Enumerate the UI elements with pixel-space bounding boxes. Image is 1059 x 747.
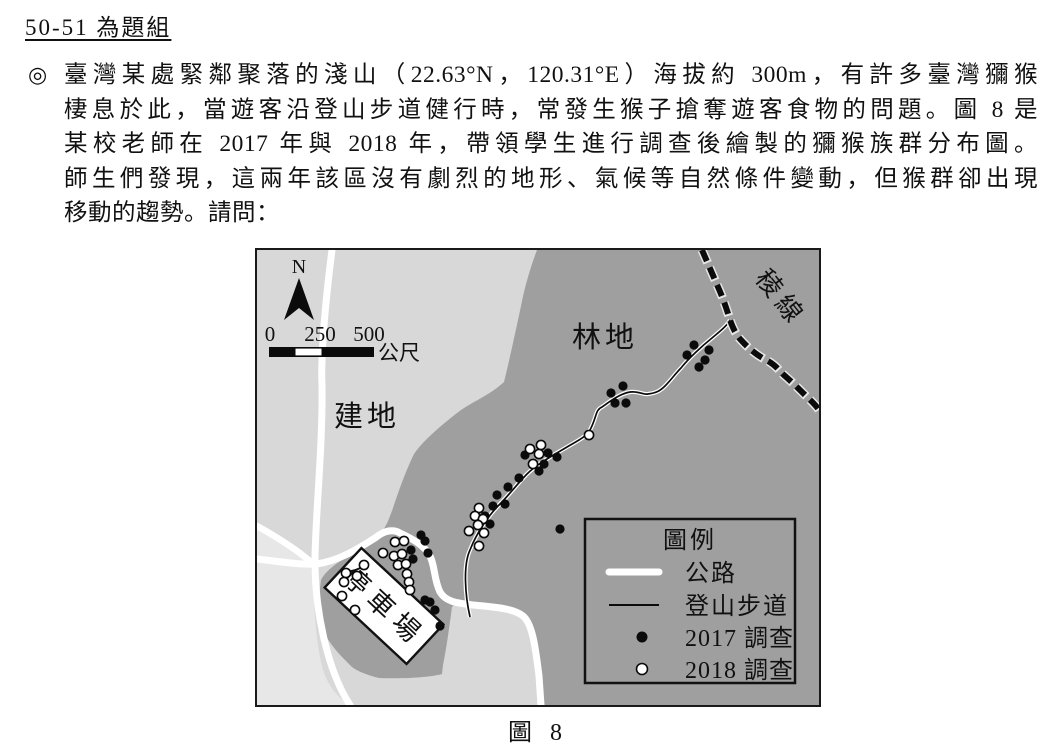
paragraph-line: 師生們發現，這兩年該區沒有劇烈的地形、氣候等自然條件變動，但猴群卻出現 bbox=[64, 164, 1038, 199]
survey-dot-2017 bbox=[606, 388, 615, 397]
survey-dot-2017 bbox=[406, 545, 415, 554]
survey-dot-2017 bbox=[552, 452, 561, 461]
question-group-heading: 50-51 為題組 bbox=[25, 8, 171, 42]
survey-dot-2017 bbox=[420, 536, 429, 545]
survey-dot-2018 bbox=[464, 526, 473, 535]
exam-page: 50-51 為題組 ◎ 臺灣某處緊鄰聚落的淺山（22.63°N，120.31°E… bbox=[0, 0, 1059, 747]
scale-tick-0: 0 bbox=[265, 322, 276, 346]
paragraph-line: 臺灣某處緊鄰聚落的淺山（22.63°N，120.31°E）海拔約 300m，有許… bbox=[64, 60, 1038, 95]
survey-dot-2017 bbox=[618, 381, 627, 390]
survey-dot-2018 bbox=[479, 528, 488, 537]
legend-2018-label: 2018 調查 bbox=[685, 657, 794, 684]
survey-dot-2018 bbox=[397, 549, 406, 558]
survey-dot-2018 bbox=[534, 449, 543, 458]
survey-dot-2017 bbox=[704, 345, 713, 354]
survey-dot-2018 bbox=[399, 536, 408, 545]
survey-dot-2018 bbox=[474, 541, 483, 550]
survey-dot-2018 bbox=[528, 459, 537, 468]
survey-dot-2017 bbox=[492, 490, 501, 499]
survey-dot-2017 bbox=[694, 362, 703, 371]
legend-2017-label: 2017 調查 bbox=[685, 625, 794, 652]
survey-dot-2017 bbox=[700, 355, 709, 364]
survey-dot-2017 bbox=[621, 398, 630, 407]
scale-bar-segment bbox=[296, 349, 322, 356]
figure-caption: 圖 8 bbox=[255, 712, 821, 747]
paragraph-line: 移動的趨勢。請問： bbox=[64, 198, 1038, 233]
survey-dot-2017 bbox=[555, 524, 564, 533]
survey-dot-2018 bbox=[359, 560, 368, 569]
paragraph-line: 棲息於此，當遊客沿登山步道健行時，常發生猴子搶奪遊客食物的問題。圖 8 是 bbox=[64, 95, 1038, 130]
survey-dot-2017 bbox=[488, 501, 497, 510]
forest-area-label: 林地 bbox=[572, 321, 638, 354]
survey-dot-2017 bbox=[543, 448, 552, 457]
survey-dot-2018 bbox=[390, 537, 399, 546]
survey-dot-2018 bbox=[341, 568, 350, 577]
survey-dot-2017 bbox=[425, 597, 434, 606]
survey-dot-2018 bbox=[401, 559, 410, 568]
legend-2018-dot bbox=[637, 664, 648, 675]
legend-trail-label: 登山步道 bbox=[685, 593, 789, 620]
survey-dot-2017 bbox=[689, 340, 698, 349]
survey-dot-2017 bbox=[430, 605, 439, 614]
survey-dot-2018 bbox=[525, 444, 534, 453]
survey-dot-2018 bbox=[378, 548, 387, 557]
survey-dot-2018 bbox=[352, 571, 361, 580]
survey-dot-2017 bbox=[435, 621, 444, 630]
scale-unit-label: 公尺 bbox=[378, 341, 420, 365]
scale-tick-250: 250 bbox=[304, 322, 336, 346]
survey-dot-2018 bbox=[584, 430, 593, 439]
survey-dot-2018 bbox=[405, 585, 414, 594]
question-paragraph: 臺灣某處緊鄰聚落的淺山（22.63°N，120.31°E）海拔約 300m，有許… bbox=[64, 60, 1038, 233]
survey-dot-2017 bbox=[514, 473, 523, 482]
survey-dot-2018 bbox=[536, 440, 545, 449]
survey-dot-2018 bbox=[350, 605, 359, 614]
survey-dot-2017 bbox=[682, 350, 691, 359]
paragraph-line: 某校老師在 2017 年與 2018 年，帶領學生進行調查後繪製的獼猴族群分布圖… bbox=[64, 129, 1038, 164]
north-label: N bbox=[292, 256, 306, 278]
survey-dot-2018 bbox=[339, 577, 348, 586]
survey-dot-2018 bbox=[337, 591, 346, 600]
survey-dot-2018 bbox=[473, 520, 482, 529]
legend-road-label: 公路 bbox=[685, 560, 737, 587]
survey-dot-2017 bbox=[503, 482, 512, 491]
paragraph-marker: ◎ bbox=[28, 62, 47, 88]
legend-2017-dot bbox=[637, 632, 648, 643]
survey-dot-2017 bbox=[500, 499, 509, 508]
figure-map: 停車場 建地 林地 稜線 N 0 250 500 公尺 bbox=[255, 248, 821, 707]
survey-map: 停車場 建地 林地 稜線 N 0 250 500 公尺 bbox=[257, 250, 819, 705]
built-area-label: 建地 bbox=[334, 400, 400, 433]
map-legend: 圖例 公路 登山步道 2017 調查 2018 調查 bbox=[585, 519, 795, 684]
legend-title: 圖例 bbox=[663, 527, 717, 554]
survey-dot-2017 bbox=[610, 398, 619, 407]
survey-dot-2017 bbox=[423, 548, 432, 557]
